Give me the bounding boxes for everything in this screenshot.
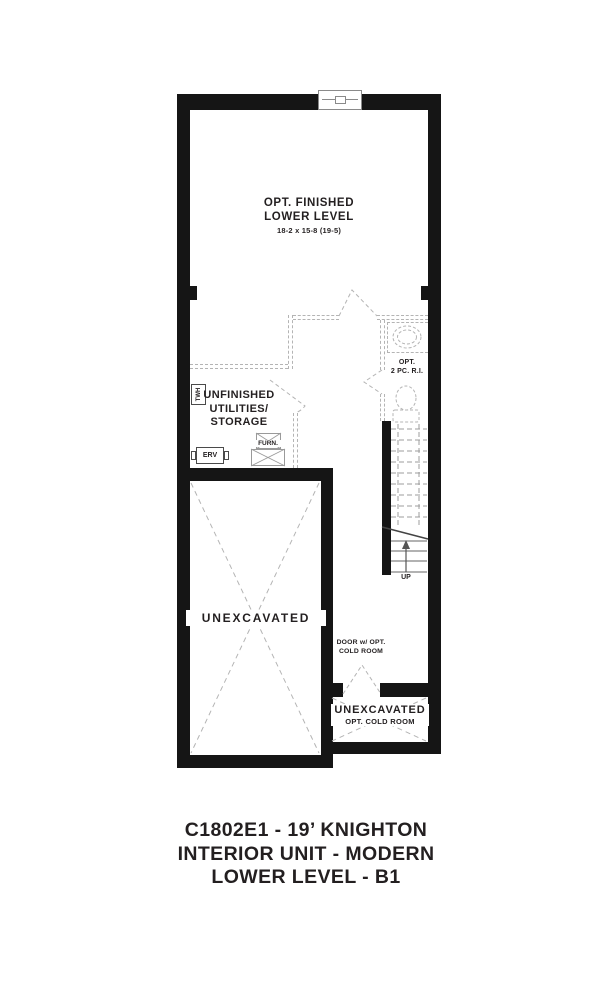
up-arrow [402,540,410,572]
title-line2: INTERIOR UNIT - MODERN [0,843,612,867]
opt-vanity-bottom [387,352,428,353]
wall-stair-west [382,421,391,575]
erv-nub-right [224,451,229,460]
stair-treads-lower [391,541,427,572]
cold-room-label-sub: OPT. COLD ROOM [331,717,429,726]
cold-room-label-main: UNEXCAVATED [331,704,429,716]
cold-room-label: UNEXCAVATED OPT. COLD ROOM [331,704,429,726]
title-block: C1802E1 - 19’ KNIGHTON INTERIOR UNIT - M… [0,819,612,890]
cold-room-door-note-line1: DOOR w/ OPT. [329,639,393,648]
opt-vanity-top [387,322,428,323]
wall-coldroom-south [321,742,441,754]
unexcavated-label: UNEXCAVATED [186,610,326,626]
opt-vanity-left [387,322,388,353]
utility-room-line1: UNFINISHED [183,389,295,403]
up-label: UP [397,574,415,581]
toilet-fixture [393,386,419,422]
wall-bottom [177,755,333,768]
furnace-box-lower [251,449,285,466]
utility-room-line2: UTILITIES/ [183,403,295,417]
cold-room-door-note-line2: COLD ROOM [329,648,393,657]
opt-wall-bath-west-lower [380,394,385,421]
window-slider-detail [335,96,346,104]
pilaster-right [421,286,428,300]
wall-coldroom-north [380,683,441,697]
furnace-label: FURN. [251,440,285,447]
stair-treads-upper [391,424,427,527]
finished-room-name-line2: LOWER LEVEL [209,210,409,224]
pilaster-left [190,286,197,300]
opt-wall-hall-north-left [293,315,339,320]
title-line1: C1802E1 - 19’ KNIGHTON [0,819,612,843]
floor-plan: TWH ERV FURN. OPT. FINISHED LOWER LEVEL … [0,0,612,1008]
utility-room-line3: STORAGE [183,416,295,430]
wall-coldroom-north-stub [321,683,343,697]
erv-box: ERV [196,447,224,464]
cold-room-door-note: DOOR w/ OPT. COLD ROOM [329,639,393,656]
wall-utilities-south [177,468,333,481]
title-line3: LOWER LEVEL - B1 [0,866,612,890]
utility-room-label: UNFINISHED UTILITIES/ STORAGE [183,389,295,430]
bathroom-label: OPT. 2 PC. R.I. [386,358,428,376]
wall-top-left [177,94,318,110]
opt-wall-bath-west-upper [380,320,385,370]
erv-label: ERV [197,448,223,463]
finished-room-label: OPT. FINISHED LOWER LEVEL 18-2 x 15-8 (1… [209,196,409,235]
wall-right [428,94,441,754]
door-swing-finished-room [339,290,377,316]
bathroom-label-line2: 2 PC. R.I. [386,367,428,376]
opt-wall-utilities-north [190,364,288,369]
wall-left [177,94,190,768]
door-swing-bathroom [364,370,382,394]
finished-room-name-line1: OPT. FINISHED [209,196,409,210]
door-swing-cold-room [343,665,381,694]
finished-room-dims: 18-2 x 15-8 (19-5) [209,226,409,235]
bathroom-label-line1: OPT. [386,358,428,367]
sink-fixture [393,326,421,348]
opt-wall-hall-west-upper [288,315,293,369]
